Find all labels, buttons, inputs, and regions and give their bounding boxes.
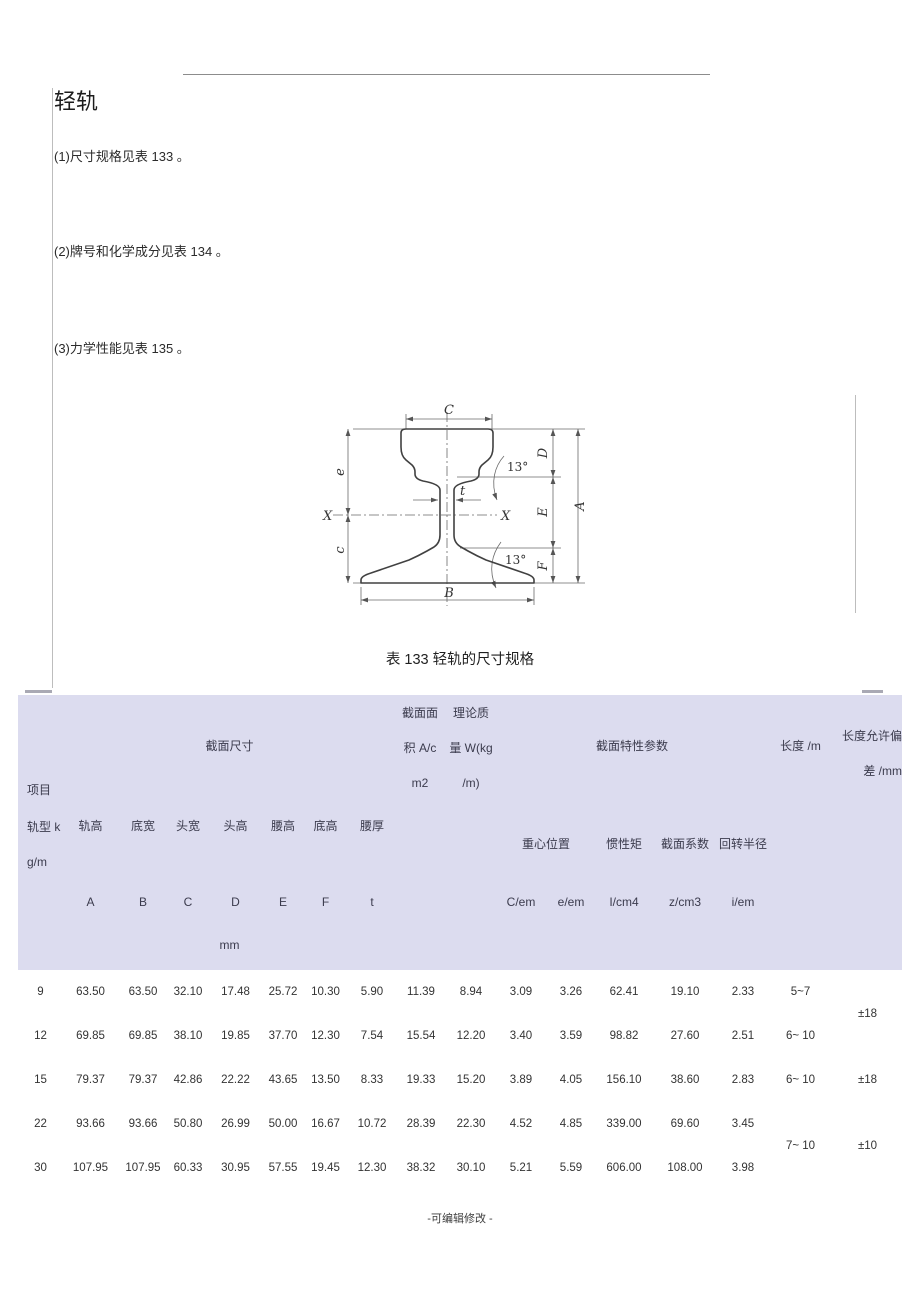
cell: 107.95: [63, 1146, 118, 1190]
header-item: 项目: [27, 781, 51, 798]
header-modulus: 截面系数: [652, 835, 718, 852]
header-letter-a: A: [63, 895, 118, 909]
angle-label-bottom: 13°: [505, 553, 526, 567]
cell: 38.32: [396, 1146, 446, 1190]
header-letter-e: E: [263, 895, 303, 909]
header-rail-type-unit: g/m: [27, 855, 47, 869]
cell: 10.30: [303, 970, 348, 1014]
cell: 4.85: [546, 1102, 596, 1146]
cell: 22.30: [446, 1102, 496, 1146]
cell: 62.41: [596, 970, 652, 1014]
cell: 57.55: [263, 1146, 303, 1190]
cell: 4.05: [546, 1058, 596, 1102]
header-letter-t: t: [348, 895, 396, 909]
section-tick-right: [862, 690, 883, 693]
cell: 156.10: [596, 1058, 652, 1102]
header-centroid: 重心位置: [496, 835, 596, 852]
paragraph-2: (2)牌号和化学成分见表 134 。: [54, 241, 229, 260]
cell: 3.59: [546, 1014, 596, 1058]
cell: 50.80: [168, 1102, 208, 1146]
cell: 19.85: [208, 1014, 263, 1058]
cell-tolerance-merged: ±18: [833, 970, 902, 1058]
cell: 22.22: [208, 1058, 263, 1102]
header-subcol-i-em: i/em: [718, 895, 768, 909]
cell: 15: [18, 1058, 63, 1102]
cell: 93.66: [118, 1102, 168, 1146]
rail-diagram-svg: C A D E F B e c t X X 13° 13°: [305, 400, 615, 612]
cell: 69.60: [652, 1102, 718, 1146]
cell: 108.00: [652, 1146, 718, 1190]
cell: 11.39: [396, 970, 446, 1014]
cell: 69.85: [118, 1014, 168, 1058]
dim-label-c-left: c: [333, 546, 348, 554]
cell: 79.37: [118, 1058, 168, 1102]
header-mass-line3: /m): [442, 766, 500, 801]
cell: 6~ 10: [768, 1014, 833, 1058]
cell: 93.66: [63, 1102, 118, 1146]
spec-table: 9 63.50 63.50 32.10 17.48 25.72 10.30 5.…: [18, 970, 902, 1190]
cell: 98.82: [596, 1014, 652, 1058]
cell: 43.65: [263, 1058, 303, 1102]
header-dim-head-height: 头高: [208, 817, 263, 834]
header-theoretical-mass: 理论质 量 W(kg /m): [442, 696, 500, 801]
cell: 19.10: [652, 970, 718, 1014]
cell: 5~7: [768, 970, 833, 1014]
cell: 3.26: [546, 970, 596, 1014]
header-letter-d: D: [208, 895, 263, 909]
header-letter-f: F: [303, 895, 348, 909]
cell: 28.39: [396, 1102, 446, 1146]
header-dim-head-width: 头宽: [168, 817, 208, 834]
dim-label-f: F: [536, 561, 551, 572]
header-tol-line1: 长度允许偏: [813, 719, 902, 754]
table-header: 截面尺寸 截面面 积 A/c m2 理论质 量 W(kg /m) 截面特性参数 …: [18, 695, 902, 970]
cell: 63.50: [63, 970, 118, 1014]
dim-label-d: D: [536, 447, 551, 459]
cell: 8.94: [446, 970, 496, 1014]
header-unit-mm: mm: [63, 938, 396, 952]
cell: 30.10: [446, 1146, 496, 1190]
header-subcol-e-em: e/em: [546, 895, 596, 909]
horizontal-rule: [183, 74, 710, 75]
cell: 25.72: [263, 970, 303, 1014]
paragraph-1: (1)尺寸规格见表 133 。: [54, 146, 190, 165]
cell: 15.54: [396, 1014, 446, 1058]
rail-cross-section-diagram: C A D E F B e c t X X 13° 13°: [305, 400, 615, 612]
header-dim-web-thickness: 腰厚: [348, 817, 396, 834]
cell: 79.37: [63, 1058, 118, 1102]
cell: 12.30: [348, 1146, 396, 1190]
dim-label-a: A: [573, 501, 588, 511]
cell: 15.20: [446, 1058, 496, 1102]
header-inertia: 惯性矩: [596, 835, 652, 852]
angle-label-top: 13°: [507, 460, 528, 474]
cell: 10.72: [348, 1102, 396, 1146]
dim-label-t: t: [460, 484, 466, 499]
cell: 13.50: [303, 1058, 348, 1102]
footer-note: -可编辑修改 -: [0, 1210, 920, 1226]
header-section-params: 截面特性参数: [496, 737, 768, 754]
cell: 3.40: [496, 1014, 546, 1058]
cell: 30.95: [208, 1146, 263, 1190]
cell: ±18: [833, 1058, 902, 1102]
cell: 9: [18, 970, 63, 1014]
cell: 38.60: [652, 1058, 718, 1102]
paragraph-3: (3)力学性能见表 135 。: [54, 338, 190, 357]
cell: 2.51: [718, 1014, 768, 1058]
header-letter-c: C: [168, 895, 208, 909]
cell: 19.45: [303, 1146, 348, 1190]
cell: 339.00: [596, 1102, 652, 1146]
header-dim-base-width: 底宽: [118, 817, 168, 834]
cell: 50.00: [263, 1102, 303, 1146]
cell: 60.33: [168, 1146, 208, 1190]
header-mass-line2: 量 W(kg: [442, 731, 500, 766]
cell: 3.45: [718, 1102, 768, 1146]
header-section-area: 截面面 积 A/c m2: [392, 696, 448, 801]
header-subcol-z-cm3: z/cm3: [652, 895, 718, 909]
header-length-tolerance: 长度允许偏 差 /mm: [813, 719, 902, 789]
cell: 6~ 10: [768, 1058, 833, 1102]
table-row: 9 63.50 63.50 32.10 17.48 25.72 10.30 5.…: [18, 970, 902, 1014]
cell: 63.50: [118, 970, 168, 1014]
cell: 38.10: [168, 1014, 208, 1058]
cell: 5.90: [348, 970, 396, 1014]
header-dim-base-height: 底高: [303, 817, 348, 834]
table-row: 22 93.66 93.66 50.80 26.99 50.00 16.67 1…: [18, 1102, 902, 1146]
dim-label-e-left: e: [333, 468, 348, 476]
header-subcol-i-cm4: I/cm4: [596, 895, 652, 909]
header-mass-line1: 理论质: [442, 696, 500, 731]
dim-label-b: B: [443, 586, 454, 601]
header-tol-line2: 差 /mm: [813, 754, 902, 789]
cell: 12.20: [446, 1014, 496, 1058]
cell: 4.52: [496, 1102, 546, 1146]
cell: 3.89: [496, 1058, 546, 1102]
cell: 5.59: [546, 1146, 596, 1190]
left-border-line: [52, 88, 53, 688]
header-dim-rail-height: 轨高: [63, 817, 118, 834]
cell: 8.33: [348, 1058, 396, 1102]
cell: 69.85: [63, 1014, 118, 1058]
cell: 26.99: [208, 1102, 263, 1146]
cell: 107.95: [118, 1146, 168, 1190]
cell: 17.48: [208, 970, 263, 1014]
header-rail-type: 轨型 k: [27, 818, 60, 835]
cell: 2.33: [718, 970, 768, 1014]
cell-length-merged: 7~ 10: [768, 1102, 833, 1190]
cell: 3.09: [496, 970, 546, 1014]
cell: 42.86: [168, 1058, 208, 1102]
figure-right-border: [855, 395, 856, 613]
header-subcol-c-em: C/em: [496, 895, 546, 909]
dimension-labels: C A D E F B e c t X X 13° 13°: [322, 403, 588, 601]
header-letter-b: B: [118, 895, 168, 909]
table-row: 15 79.37 79.37 42.86 22.22 43.65 13.50 8…: [18, 1058, 902, 1102]
cell: 30: [18, 1146, 63, 1190]
table-row: 12 69.85 69.85 38.10 19.85 37.70 12.30 7…: [18, 1014, 902, 1058]
axis-label-x-left: X: [322, 509, 333, 524]
cell-tolerance-merged: ±10: [833, 1102, 902, 1190]
section-tick-left: [25, 690, 52, 693]
header-area-line2: 积 A/c: [392, 731, 448, 766]
cell: 7.54: [348, 1014, 396, 1058]
cell: 5.21: [496, 1146, 546, 1190]
page-title: 轻轨: [54, 84, 98, 116]
header-section-dims: 截面尺寸: [63, 737, 396, 754]
header-area-line3: m2: [392, 766, 448, 801]
cell: 19.33: [396, 1058, 446, 1102]
cell: 606.00: [596, 1146, 652, 1190]
cell: 12.30: [303, 1014, 348, 1058]
cell: 37.70: [263, 1014, 303, 1058]
header-area-line1: 截面面: [392, 696, 448, 731]
cell: 2.83: [718, 1058, 768, 1102]
axis-label-x-right: X: [500, 509, 511, 524]
document-page: 轻轨 (1)尺寸规格见表 133 。 (2)牌号和化学成分见表 134 。 (3…: [0, 0, 920, 1303]
dim-label-e-right: E: [536, 507, 551, 518]
cell: 3.98: [718, 1146, 768, 1190]
dim-label-c-top: C: [444, 403, 454, 418]
table-caption: 表 133 轻轨的尺寸规格: [0, 648, 920, 669]
cell: 12: [18, 1014, 63, 1058]
header-dim-web-height: 腰高: [263, 817, 303, 834]
cell: 22: [18, 1102, 63, 1146]
cell: 27.60: [652, 1014, 718, 1058]
cell: 32.10: [168, 970, 208, 1014]
cell: 16.67: [303, 1102, 348, 1146]
header-radius: 回转半径: [718, 835, 768, 852]
